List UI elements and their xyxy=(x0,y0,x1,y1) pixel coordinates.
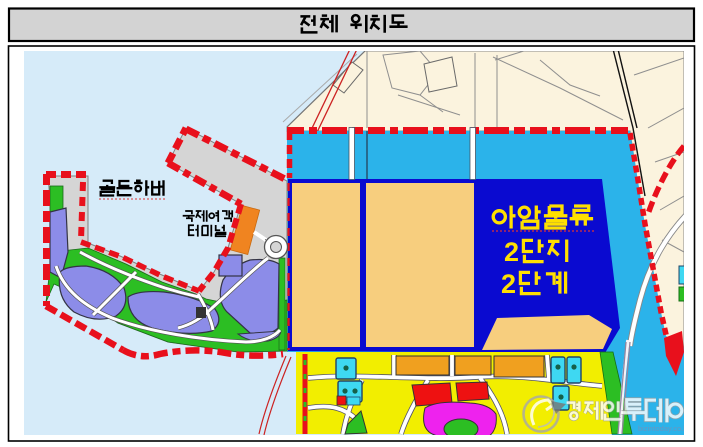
svg-text:2: 2 xyxy=(501,269,516,299)
svg-text:2: 2 xyxy=(504,237,519,267)
svg-text:bizintoday.co.kr: bizintoday.co.kr xyxy=(638,424,690,433)
